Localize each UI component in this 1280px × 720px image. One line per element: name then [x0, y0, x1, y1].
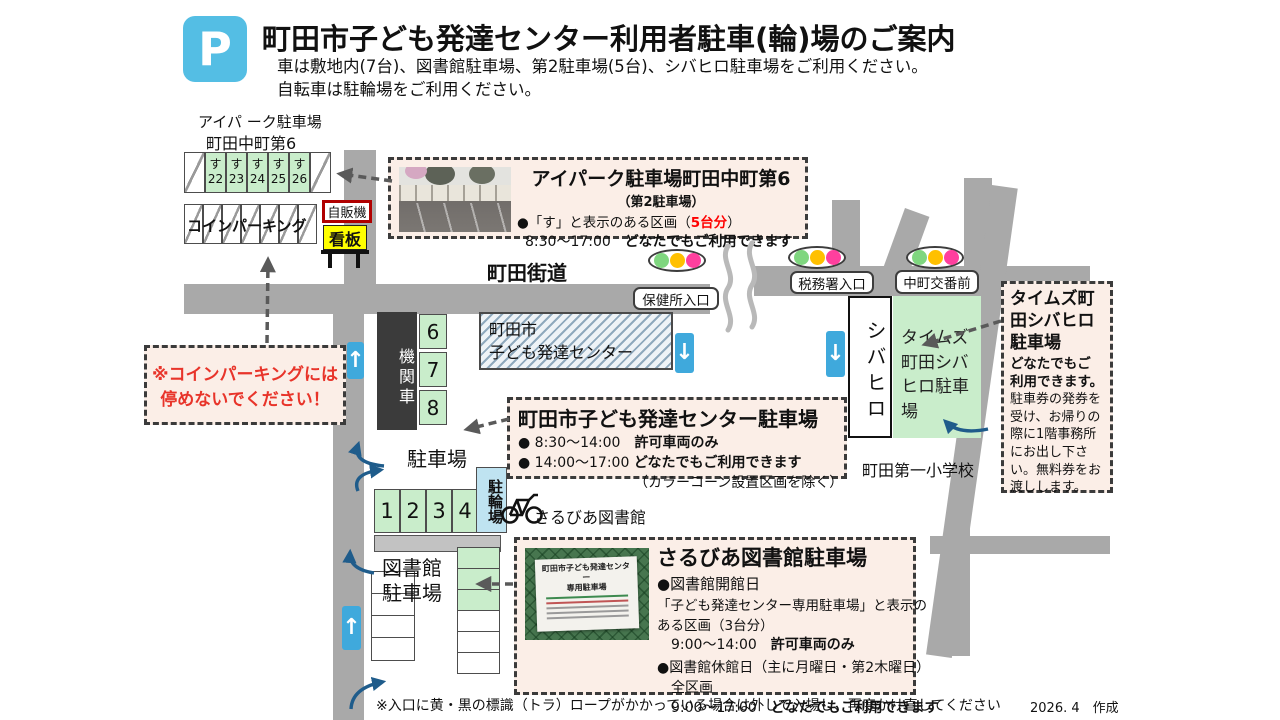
stall-num: 23: [227, 172, 246, 187]
vending-machine-label: 自販機: [322, 200, 372, 223]
front-stall-1: 1: [374, 489, 400, 533]
traffic-yellow-lamp: [670, 253, 685, 268]
traffic-pink-lamp: [826, 250, 841, 265]
traffic-yellow-lamp: [810, 250, 825, 265]
callout-times: タイムズ町田シバヒロ駐車場 どなたでもご利用できます。 駐車券の発券を受け、お帰…: [1001, 281, 1113, 493]
down-arrow-icon: ↓: [826, 331, 845, 377]
sign-text-bar: [547, 615, 629, 620]
signboard-stand-leg: [356, 254, 360, 268]
library-sign-board: 町田市子ども発達センター 専用駐車場: [535, 556, 639, 631]
stall-su-24: す24: [247, 152, 268, 193]
stall-reserved: [457, 589, 500, 611]
callout-aipark: アイパーク駐車場町田中町第6 （第2駐車場） ●「す」と表示のある区画（5台分）…: [388, 157, 808, 239]
photo-parking-lines: [399, 203, 511, 232]
callout-times-title: タイムズ町田シバヒロ駐車場: [1010, 288, 1104, 354]
stall-reserved: [457, 547, 500, 569]
sarubia-closed-hours: 9:00～17:00 どなたでもご利用できます: [671, 697, 913, 717]
up-arrow-icon: ↑: [347, 342, 364, 379]
stall-empty: [457, 631, 500, 653]
stall-kana: す: [206, 157, 225, 172]
stall-su-23: す23: [226, 152, 247, 193]
down-arrow-icon: ↓: [675, 333, 694, 373]
stall-empty: [371, 637, 415, 661]
footer-credit: 2026. 4 作成: [1030, 697, 1119, 716]
site-stall-6: 6: [419, 314, 447, 349]
hours-time: 8:30～17:00: [525, 234, 611, 250]
traffic-green-lamp: [654, 253, 669, 268]
center-building: 町田市 子ども発達センター: [479, 312, 673, 370]
stall-num: 22: [206, 172, 225, 187]
photo-aipark-lot: [399, 167, 511, 232]
stall-kana: す: [290, 157, 309, 172]
callout-sarubia-title: さるびあ図書館駐車場: [657, 542, 913, 572]
bus-stop-nakamachi-koban: 中町交番前: [895, 270, 979, 294]
line2-time: ● 14:00～17:00: [518, 455, 634, 471]
site-stall-7: 7: [419, 352, 447, 387]
building-name-line1: 町田市: [489, 318, 663, 341]
traffic-pink-lamp: [944, 250, 959, 265]
road-break-wavy-lines: [725, 243, 754, 330]
line2-note: どなたでもご利用できます: [634, 455, 802, 471]
bus-stop-hokenjo: 保健所入口: [633, 287, 719, 310]
line1-time: ● 8:30～14:00: [518, 435, 634, 451]
front-stall-3: 3: [426, 489, 452, 533]
stall-kana: す: [248, 157, 267, 172]
sign-title-line2: 専用駐車場: [539, 581, 635, 594]
signboard-stand-leg: [328, 254, 332, 268]
signboard-label: 看板: [323, 225, 367, 250]
front-stall-row: 1 2 3 4: [374, 489, 478, 533]
parking-lot-label: 駐車場: [407, 443, 467, 472]
sarubia-library-label: さるびあ図書館: [534, 504, 646, 528]
front-stall-2: 2: [400, 489, 426, 533]
sarubia-open-hours: 9:00～14:00 許可車両のみ: [671, 634, 913, 654]
road-machida-kaido-label: 町田街道: [487, 257, 567, 286]
school-label: 町田第一小学校: [862, 457, 974, 481]
open-note: 許可車両のみ: [771, 637, 855, 653]
condition-text: ●「す」と表示のある区画（: [517, 215, 691, 231]
photo-tree: [469, 167, 495, 184]
subtitle-line2: 自転車は駐輪場をご利用ください。: [277, 76, 541, 100]
stall-empty: [184, 152, 205, 193]
open-time: 9:00～14:00: [671, 637, 771, 653]
library-parking-label-line2: 駐車場: [382, 581, 442, 606]
closed-note: どなたでもご利用できます: [771, 700, 939, 716]
photo-fence: [399, 185, 511, 201]
coin-parking-label: コインパーキング: [187, 215, 307, 236]
stall-su-25: す25: [268, 152, 289, 193]
stall-num: 24: [248, 172, 267, 187]
shibahiro-area: シバヒロ: [848, 296, 892, 438]
library-stall-column-right: [457, 547, 500, 674]
photo-tree: [425, 167, 455, 185]
callout-center-line2: ● 14:00～17:00 どなたでもご利用できます: [518, 452, 836, 472]
stall-kana: す: [269, 157, 288, 172]
stall-su-26: す26: [289, 152, 310, 193]
sarubia-open-line2: ある区画（3台分）: [657, 614, 913, 634]
sarubia-closed-head: ●図書館休館日（主に月曜日・第2木曜日）: [657, 657, 913, 677]
page-title: 町田市子ども発達センター利用者駐車(輪)場のご案内: [262, 16, 956, 58]
traffic-pink-lamp: [686, 253, 701, 268]
road-machida-kaido-west: [184, 284, 710, 314]
stall-su-22: す22: [205, 152, 226, 193]
front-stall-4: 4: [452, 489, 478, 533]
callout-center-parking: 町田市子ども発達センター駐車場 ● 8:30～14:00 許可車両のみ ● 14…: [507, 397, 847, 479]
stall-empty: [457, 610, 500, 632]
sign-text-bar: [546, 595, 628, 600]
warning-line2: 停めないでください！: [160, 385, 330, 410]
condition-count-red: 5台分: [691, 215, 727, 231]
stall-kana: す: [227, 157, 246, 172]
callout-aipark-hours: 8:30～17:00 どなたでもご利用できます: [525, 231, 805, 251]
callout-coin-parking-warning: ※コインパーキングには 停めないでください！: [144, 345, 346, 425]
stall-num: 26: [290, 172, 309, 187]
line1-note: 許可車両のみ: [634, 435, 718, 451]
traffic-light-icon: [648, 249, 706, 272]
callout-times-body: 駐車券の発券を受け、お帰りの際に1階事務所にお出し下さい。無料券をお渡しします。: [1010, 391, 1104, 496]
up-arrow-icon: ↑: [342, 606, 361, 650]
traffic-green-lamp: [912, 250, 927, 265]
stall-empty: [457, 652, 500, 674]
traffic-light-icon: [906, 246, 964, 269]
site-stall-8: 8: [419, 390, 447, 425]
aipark-area-label-line2: 町田中町第6: [206, 130, 296, 154]
bus-stop-zeimusho: 税務署入口: [790, 271, 874, 294]
callout-times-emphasis: どなたでもご利用できます。: [1010, 356, 1104, 391]
sarubia-closed-line1: 全区画: [671, 677, 913, 697]
traffic-green-lamp: [794, 250, 809, 265]
locomotive-display-area: 機関車: [377, 312, 417, 430]
callout-center-line3: （カラーコーン設置区画を除く）: [634, 472, 836, 492]
warning-line1: ※コインパーキングには: [152, 360, 338, 385]
photo-library-sign: 町田市子ども発達センター 専用駐車場: [525, 548, 649, 640]
sign-text-bar: [546, 600, 628, 605]
traffic-yellow-lamp: [928, 250, 943, 265]
library-parking-label-line1: 図書館: [382, 556, 442, 581]
road-school-vertical: [948, 498, 970, 656]
photo-cherry-tree: [405, 167, 427, 179]
callout-center-title: 町田市子ども発達センター駐車場: [518, 403, 836, 432]
aipark-area-label-line1: アイパ ーク駐車場: [198, 111, 322, 132]
hours-note: どなたでもご利用できます: [625, 234, 793, 250]
aipark-stall-row: す22 す23 す24 す25 す26: [184, 152, 331, 193]
sign-text-bar: [547, 610, 629, 615]
subtitle-line1: 車は敷地内(7台)、図書館駐車場、第2駐車場(5台)、シバヒロ駐車場をご利用くだ…: [277, 53, 928, 77]
bicycle-icon: [501, 487, 543, 527]
callout-aipark-subtitle: （第2駐車場）: [517, 191, 805, 210]
building-name-line2: 子ども発達センター: [489, 341, 663, 364]
callout-center-line1: ● 8:30～14:00 許可車両のみ: [518, 432, 836, 452]
callout-aipark-title: アイパーク駐車場町田中町第6: [517, 164, 805, 191]
parking-guide-page: P 町田市子ども発達センター利用者駐車(輪)場のご案内 車は敷地内(7台)、図書…: [0, 0, 1280, 720]
callout-sarubia: 町田市子ども発達センター 専用駐車場 さるびあ図書館駐車場 ●図書館開館日 「子…: [514, 537, 916, 695]
times-shibahiro-area: タイムズ町田シバヒロ駐車場: [893, 296, 981, 438]
condition-close: ）: [727, 215, 741, 231]
stall-reserved: [457, 568, 500, 590]
sarubia-open-line1: 「子ども発達センター専用駐車場」と表示の: [657, 594, 913, 614]
closed-time: 9:00～17:00: [671, 700, 771, 716]
sarubia-open-head: ●図書館開館日: [657, 573, 913, 594]
parking-p-icon: P: [183, 16, 247, 82]
library-parking-label: 図書館 駐車場: [382, 556, 442, 606]
stall-empty: [310, 152, 331, 193]
stall-num: 25: [269, 172, 288, 187]
sign-text-bar: [547, 605, 629, 610]
callout-aipark-condition: ●「す」と表示のある区画（5台分）: [517, 211, 805, 231]
stall-empty: [371, 615, 415, 638]
